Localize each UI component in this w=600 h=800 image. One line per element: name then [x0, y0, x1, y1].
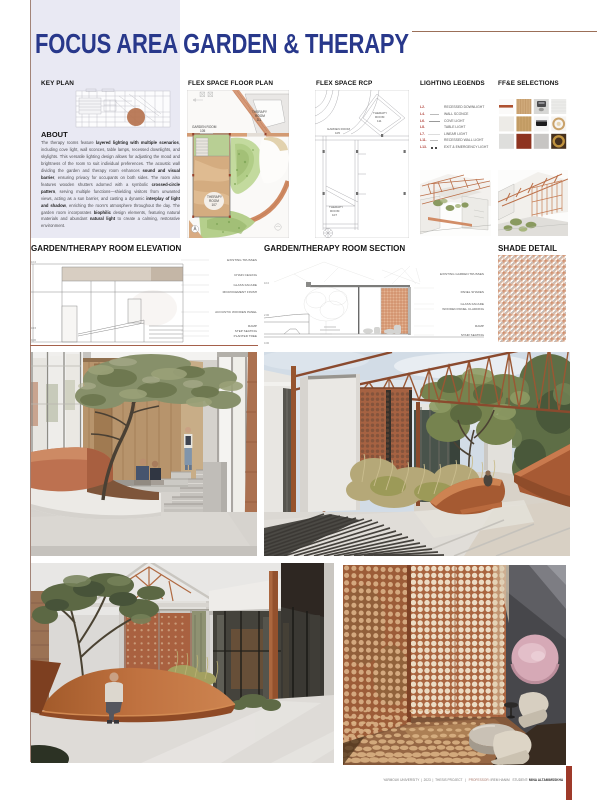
svg-text:0.00: 0.00 — [264, 341, 270, 345]
svg-text:105: 105 — [335, 131, 340, 135]
svg-text:MICROCEMENT FINISH: MICROCEMENT FINISH — [223, 290, 257, 294]
svg-text:PANEL SHADES: PANEL SHADES — [461, 290, 484, 294]
svg-text:STAIR SEATING: STAIR SEATING — [461, 333, 484, 337]
svg-text:107: 107 — [332, 213, 337, 217]
svg-text:0.00: 0.00 — [31, 338, 37, 342]
svg-text:RAMP: RAMP — [475, 324, 484, 328]
svg-text:2.00: 2.00 — [264, 313, 270, 317]
svg-text:ACOUSTIC WOODEN PANEL: ACOUSTIC WOODEN PANEL — [215, 310, 257, 314]
svg-text:GLASS FACADE: GLASS FACADE — [460, 302, 484, 306]
svg-text:RAMP: RAMP — [248, 324, 257, 328]
svg-text:STEP SEATING: STEP SEATING — [235, 329, 258, 333]
svg-text:PLANTED TREE: PLANTED TREE — [234, 334, 257, 338]
svg-text:111: 111 — [257, 118, 262, 122]
svg-text:105: 105 — [200, 129, 206, 133]
svg-text:WOODEN PANEL CLADDING: WOODEN PANEL CLADDING — [442, 307, 484, 311]
svg-text:111: 111 — [377, 119, 382, 123]
svg-text:107: 107 — [212, 203, 218, 207]
svg-text:0.15: 0.15 — [31, 326, 37, 330]
svg-text:EXISTING GARDEN TRUSSES: EXISTING GARDEN TRUSSES — [440, 272, 484, 276]
svg-text:GLASS FACADE: GLASS FACADE — [233, 283, 257, 287]
svg-text:CHAIN CEILING: CHAIN CEILING — [234, 273, 257, 277]
svg-text:10.0: 10.0 — [264, 281, 270, 285]
svg-text:EXISTING TRUSSES: EXISTING TRUSSES — [227, 258, 257, 262]
svg-text:10.0: 10.0 — [31, 260, 37, 264]
